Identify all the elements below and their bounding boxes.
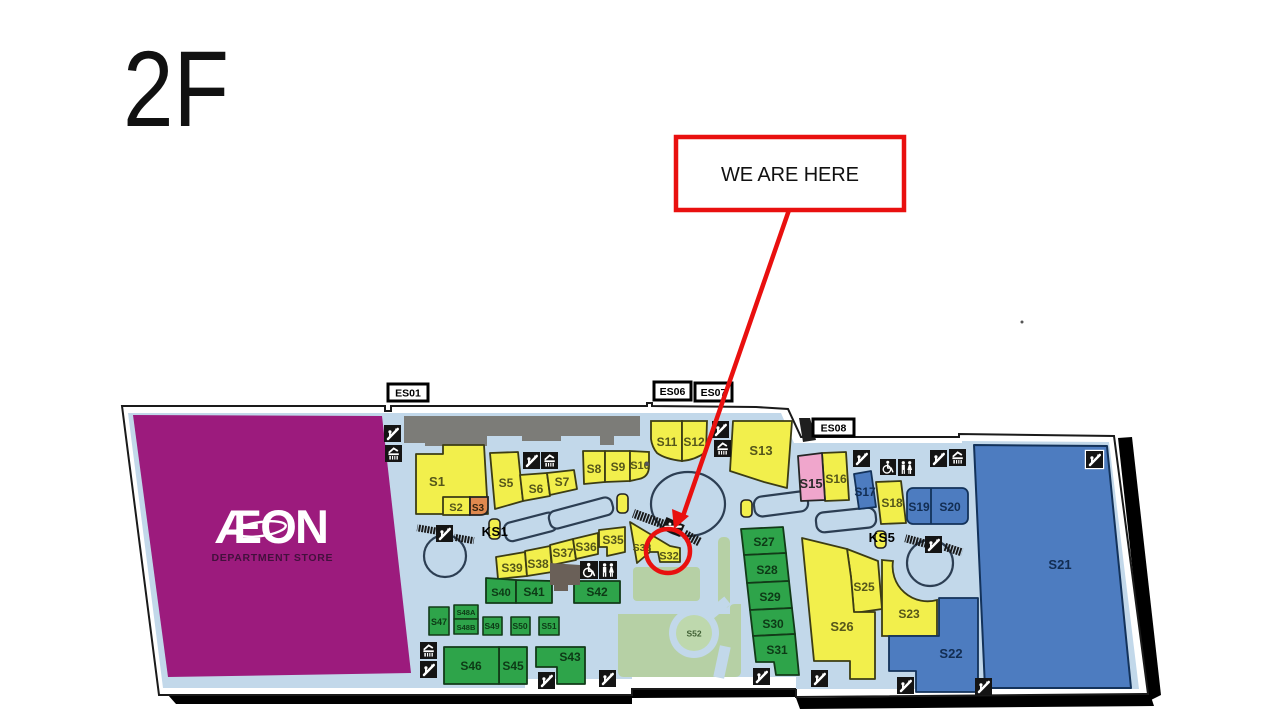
svg-text:S12: S12 <box>683 435 705 449</box>
svg-text:S19: S19 <box>908 500 930 514</box>
svg-text:S9: S9 <box>611 460 626 474</box>
svg-text:ES08: ES08 <box>821 422 847 434</box>
svg-text:S25: S25 <box>853 580 875 594</box>
svg-text:S8: S8 <box>587 462 602 476</box>
svg-text:S32: S32 <box>659 551 679 563</box>
svg-text:WE ARE HERE: WE ARE HERE <box>721 164 859 186</box>
svg-text:S6: S6 <box>529 482 544 496</box>
svg-text:S52: S52 <box>686 629 701 639</box>
svg-text:S43: S43 <box>559 650 581 664</box>
svg-text:S49: S49 <box>484 621 499 631</box>
svg-text:S28: S28 <box>756 563 778 577</box>
svg-text:S31: S31 <box>766 643 788 657</box>
svg-text:2F: 2F <box>123 28 229 149</box>
svg-text:S21: S21 <box>1048 557 1071 572</box>
svg-text:S13: S13 <box>749 443 772 458</box>
svg-text:S26: S26 <box>830 619 853 634</box>
svg-text:S40: S40 <box>491 587 511 599</box>
svg-text:S29: S29 <box>759 590 781 604</box>
svg-text:S48A: S48A <box>457 608 476 617</box>
svg-text:S30: S30 <box>762 617 784 631</box>
svg-text:S2: S2 <box>449 502 462 514</box>
svg-text:S16: S16 <box>825 472 847 486</box>
svg-text:KS5: KS5 <box>869 530 896 545</box>
svg-text:KS1: KS1 <box>482 524 509 539</box>
svg-text:ES01: ES01 <box>395 387 421 399</box>
svg-text:ES06: ES06 <box>660 386 686 398</box>
svg-text:S1: S1 <box>429 474 445 489</box>
svg-text:S35: S35 <box>602 533 624 547</box>
svg-text:ÆON: ÆON <box>215 500 329 553</box>
svg-text:S51: S51 <box>541 621 556 631</box>
svg-text:S27: S27 <box>753 535 775 549</box>
svg-text:S48B: S48B <box>457 623 476 632</box>
svg-text:S22: S22 <box>939 646 962 661</box>
svg-text:S11: S11 <box>657 435 678 449</box>
svg-text:S23: S23 <box>898 607 920 621</box>
svg-text:S36: S36 <box>575 540 597 554</box>
svg-text:S37: S37 <box>552 546 574 560</box>
svg-text:S50: S50 <box>512 621 527 631</box>
svg-text:S46: S46 <box>460 659 482 673</box>
svg-text:S5: S5 <box>499 476 514 490</box>
svg-text:S45: S45 <box>502 659 524 673</box>
svg-text:S17: S17 <box>854 485 876 499</box>
svg-text:S15: S15 <box>799 476 822 491</box>
svg-text:S41: S41 <box>523 585 545 599</box>
svg-text:DEPARTMENT STORE: DEPARTMENT STORE <box>212 552 333 564</box>
svg-text:S7: S7 <box>555 475 570 489</box>
svg-text:S39: S39 <box>501 561 523 575</box>
svg-text:S18: S18 <box>881 496 903 510</box>
svg-text:S47: S47 <box>431 617 447 627</box>
svg-text:S3: S3 <box>472 503 485 514</box>
svg-text:S20: S20 <box>939 500 961 514</box>
svg-text:S42: S42 <box>586 585 608 599</box>
svg-text:S38: S38 <box>527 557 549 571</box>
